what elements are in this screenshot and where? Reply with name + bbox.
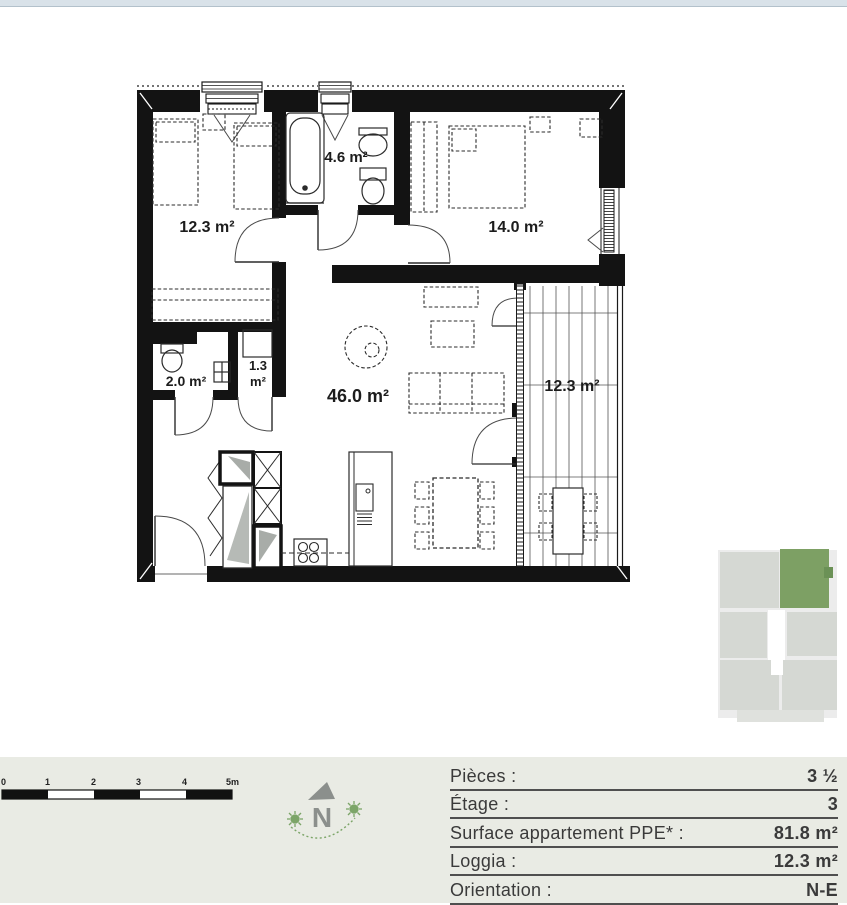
washing-machine-icon (243, 330, 272, 357)
detail-value: 3 (828, 794, 838, 815)
detail-label: Étage : (450, 794, 509, 815)
coffee-table-icon (431, 321, 474, 347)
detail-row-orientation: Orientation : N-E (450, 876, 838, 905)
detail-value: 3 ½ (807, 766, 838, 787)
detail-value: 81.8 m² (774, 823, 838, 844)
detail-row-loggia: Loggia : 12.3 m² (450, 848, 838, 877)
info-band: 0 1 2 3 4 5m N Pièces : (0, 757, 847, 903)
north-arrow-icon (308, 782, 335, 800)
nightstand-icon (530, 117, 550, 132)
room-label-reduit-line1: 1.3 (249, 358, 267, 373)
scale-tick-5: 5m (226, 777, 239, 787)
sofa-icon (409, 373, 504, 413)
chair-icon (480, 532, 494, 549)
scale-tick-1: 1 (45, 777, 50, 787)
detail-label: Pièces : (450, 766, 516, 787)
building-locator-map (712, 546, 845, 724)
dining-table-icon (433, 478, 478, 548)
wardrobe-icon (152, 289, 278, 320)
chair-icon (480, 482, 494, 499)
scale-tick-2: 2 (91, 777, 96, 787)
chair-icon (415, 482, 429, 499)
room-label-bedroom1: 12.3 m² (179, 219, 234, 236)
toilet-icon (161, 344, 183, 353)
detail-label: Loggia : (450, 851, 516, 872)
chair-icon (415, 507, 429, 524)
scale-tick-3: 3 (136, 777, 141, 787)
chair-icon (415, 532, 429, 549)
scale-bar: 0 1 2 3 4 5m (0, 775, 250, 807)
loggia-railing (618, 286, 623, 566)
scale-tick-0: 0 (1, 777, 6, 787)
north-compass: N (282, 779, 377, 854)
sun-icon (287, 811, 303, 827)
scale-tick-4: 4 (182, 777, 187, 787)
sideboard-icon (424, 287, 478, 307)
loggia-table-chairs-icon (539, 488, 597, 554)
interior-doors (175, 210, 518, 464)
loggia-glazing (517, 284, 524, 566)
apartment-details-table: Pièces : 3 ½ Étage : 3 Surface apparteme… (450, 762, 838, 905)
bed-double-icon (449, 126, 525, 208)
room-label-living: 46.0 m² (327, 386, 389, 406)
north-label: N (312, 802, 332, 833)
selected-unit-highlight (780, 549, 829, 608)
sun-icon (346, 801, 362, 817)
chair-icon (480, 507, 494, 524)
room-label-bedroom2: 14.0 m² (488, 219, 543, 236)
detail-value: 12.3 m² (774, 851, 838, 872)
room-label-wc: 2.0 m² (166, 373, 207, 389)
bedroom1-furniture (152, 114, 279, 320)
bedroom2-furniture (411, 117, 602, 212)
detail-label: Surface appartement PPE* : (450, 823, 684, 844)
detail-row-pieces: Pièces : 3 ½ (450, 762, 838, 791)
nightstand-icon (580, 119, 602, 137)
room-label-loggia: 12.3 m² (544, 378, 599, 395)
bed-single-icon (153, 119, 198, 205)
window-bathroom-icon (318, 82, 352, 140)
room-label-bathroom: 4.6 m² (324, 149, 367, 166)
detail-row-etage: Étage : 3 (450, 791, 838, 820)
entrance-door (155, 516, 207, 582)
room-label-reduit-line2: m² (250, 374, 267, 389)
detail-value: N-E (806, 880, 838, 901)
detail-label: Orientation : (450, 880, 552, 901)
kitchen (208, 452, 392, 568)
window-bedroom2-icon (588, 188, 625, 254)
nightstand-icon (203, 114, 225, 130)
detail-row-surface: Surface appartement PPE* : 81.8 m² (450, 819, 838, 848)
window-bedroom1-icon (200, 82, 264, 142)
